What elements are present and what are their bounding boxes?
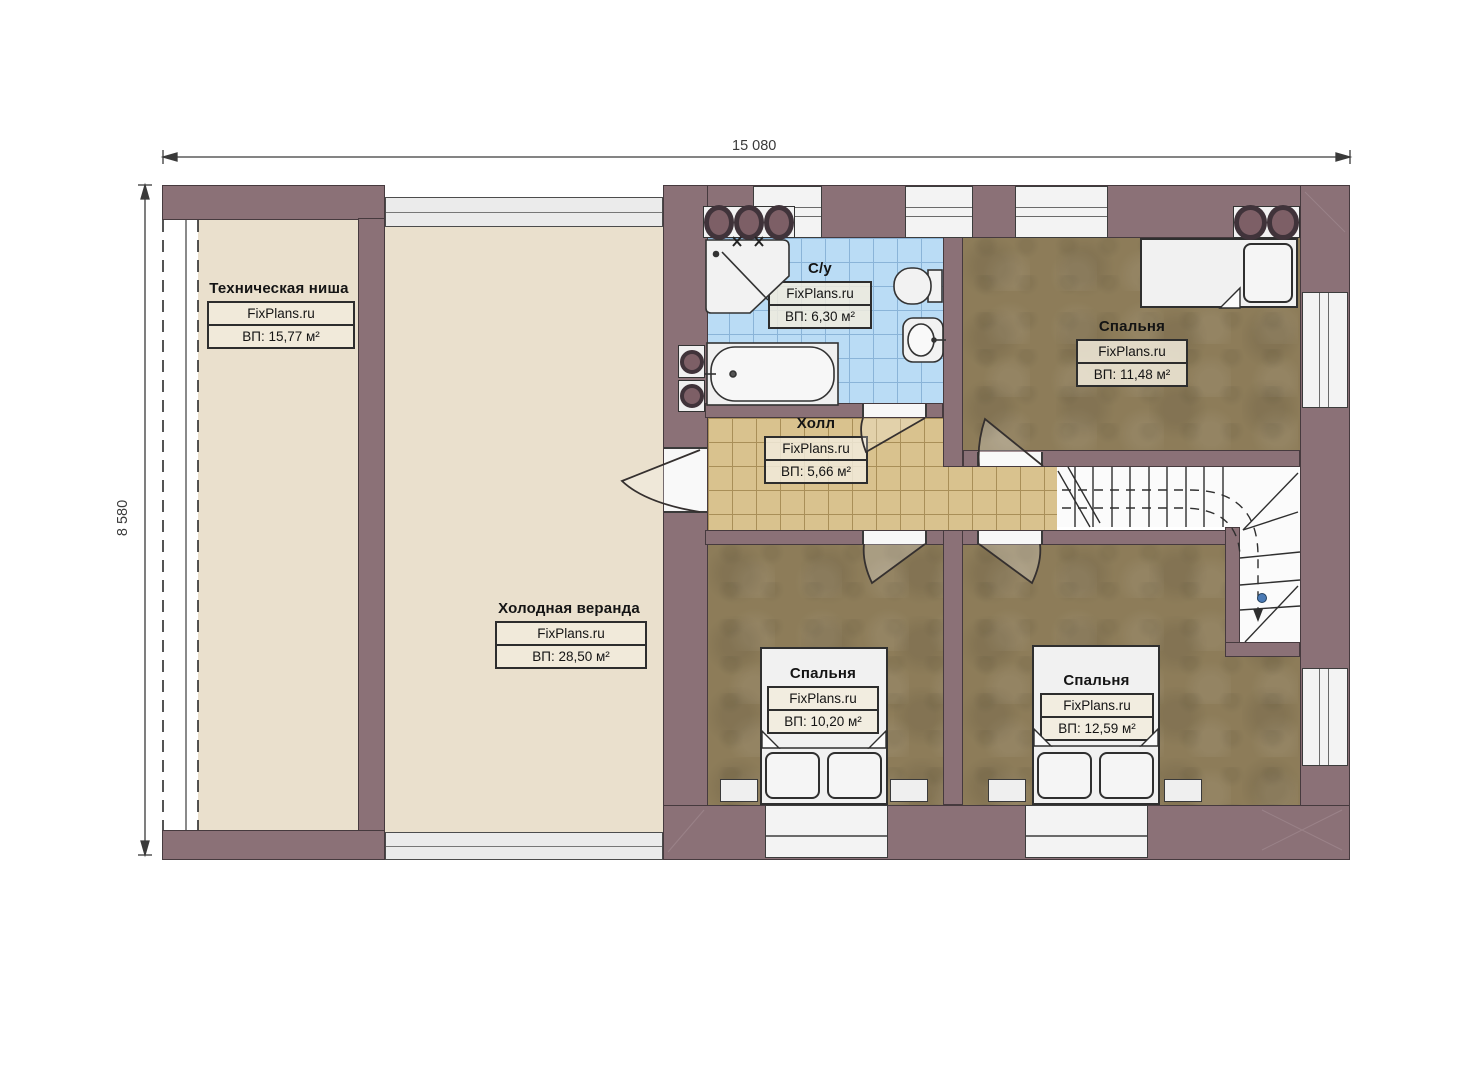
veranda-bottom-wall: [162, 830, 385, 860]
bedrooms-divider-wall: [943, 530, 963, 805]
room-info-box: FixPlans.ru ВП: 5,66 м²: [764, 436, 868, 484]
vent-shaft-box: [703, 206, 795, 238]
window: [1302, 668, 1348, 766]
riser-pipe-box: [678, 380, 705, 412]
dimension-height-line: [138, 185, 152, 855]
room-label-bedroom-br: Спальня FixPlans.ru ВП: 12,59 м²: [1040, 672, 1153, 741]
room-title: Спальня: [1040, 672, 1153, 689]
dimension-height-label: 8 580: [115, 500, 131, 536]
hall-bottom-wall: [705, 530, 1240, 545]
brand-label: FixPlans.ru: [769, 688, 877, 709]
pillow: [1099, 752, 1154, 799]
room-info-box: FixPlans.ru ВП: 28,50 м²: [495, 621, 647, 669]
window: [905, 186, 973, 238]
room-title: Холодная веранда: [493, 600, 645, 617]
bedroom-br-door-opening: [977, 531, 1043, 544]
bedroom-bl-door-opening: [862, 531, 927, 544]
room-label-hall: Холл FixPlans.ru ВП: 5,66 м²: [764, 415, 868, 484]
pipe-icon: [680, 384, 704, 408]
room-info-box: FixPlans.ru ВП: 11,48 м²: [1076, 339, 1188, 387]
veranda-bottom-glazing: [385, 832, 663, 860]
area-label: ВП: 15,77 м²: [209, 324, 353, 347]
room-info-box: FixPlans.ru ВП: 15,77 м²: [207, 301, 355, 349]
area-label: ВП: 28,50 м²: [497, 644, 645, 667]
veranda-top-glazing: [385, 197, 663, 227]
room-info-box: FixPlans.ru ВП: 6,30 м²: [768, 281, 872, 329]
vent-shaft-icon: [704, 205, 734, 240]
room-label-bedroom-bl: Спальня FixPlans.ru ВП: 10,20 м²: [767, 665, 879, 734]
stair-enclosure-left-wall: [1225, 527, 1240, 657]
brand-label: FixPlans.ru: [1078, 341, 1186, 362]
stairs-upper-run: [1057, 467, 1300, 527]
vent-shaft-icon: [764, 205, 794, 240]
room-title: Холл: [764, 415, 868, 432]
pillow: [1037, 752, 1092, 799]
nightstand: [988, 779, 1026, 802]
entry-door-opening: [664, 447, 707, 513]
brand-label: FixPlans.ru: [1042, 695, 1152, 716]
veranda-open-edge: [163, 220, 198, 830]
room-title: Техническая ниша: [203, 280, 355, 297]
area-label: ВП: 10,20 м²: [769, 709, 877, 732]
vent-shaft-icon: [734, 205, 764, 240]
room-label-tech-niche: Техническая ниша FixPlans.ru ВП: 15,77 м…: [203, 280, 355, 349]
room-info-box: FixPlans.ru ВП: 10,20 м²: [767, 686, 879, 734]
veranda-top-wall: [162, 185, 385, 220]
room-title: Спальня: [767, 665, 879, 682]
vent-shaft-icon: [1267, 205, 1300, 240]
niche-divider-wall: [358, 218, 385, 832]
pipe-icon: [680, 350, 704, 374]
area-label: ВП: 6,30 м²: [770, 304, 870, 327]
vent-shaft-icon: [1234, 205, 1267, 240]
floor-plan: Техническая ниша FixPlans.ru ВП: 15,77 м…: [0, 0, 1473, 1080]
dimension-width-label: 15 080: [732, 138, 776, 154]
room-title: С/у: [768, 260, 872, 277]
area-label: ВП: 12,59 м²: [1042, 716, 1152, 739]
nightstand: [1164, 779, 1202, 802]
stair-enclosure-bottom-wall: [1225, 642, 1300, 657]
house-left-wall: [663, 185, 708, 860]
pillow: [827, 752, 882, 799]
window: [1015, 186, 1108, 238]
area-label: ВП: 11,48 м²: [1078, 362, 1186, 385]
window: [1302, 292, 1348, 408]
room-info-box: FixPlans.ru ВП: 12,59 м²: [1040, 693, 1154, 741]
stairs-lower-run: [1240, 527, 1300, 642]
room-title: Спальня: [1076, 318, 1188, 335]
riser-pipe-box: [678, 345, 705, 378]
room-label-bathroom: С/у FixPlans.ru ВП: 6,30 м²: [768, 260, 872, 329]
bathroom-door-opening: [862, 404, 927, 417]
brand-label: FixPlans.ru: [497, 623, 645, 644]
brand-label: FixPlans.ru: [766, 438, 866, 459]
pillow: [765, 752, 820, 799]
brand-label: FixPlans.ru: [209, 303, 353, 324]
nightstand: [720, 779, 758, 802]
window: [1025, 805, 1148, 858]
pillow: [1243, 243, 1293, 303]
room-label-veranda: Холодная веранда FixPlans.ru ВП: 28,50 м…: [493, 600, 645, 669]
hall-corridor-floor: [943, 467, 1057, 530]
window: [765, 805, 888, 858]
vent-shaft-box: [1233, 206, 1300, 238]
brand-label: FixPlans.ru: [770, 283, 870, 304]
bedroom-top-door-opening: [977, 452, 1043, 466]
area-label: ВП: 5,66 м²: [766, 459, 866, 482]
room-label-bedroom-top: Спальня FixPlans.ru ВП: 11,48 м²: [1076, 318, 1188, 387]
nightstand: [890, 779, 928, 802]
